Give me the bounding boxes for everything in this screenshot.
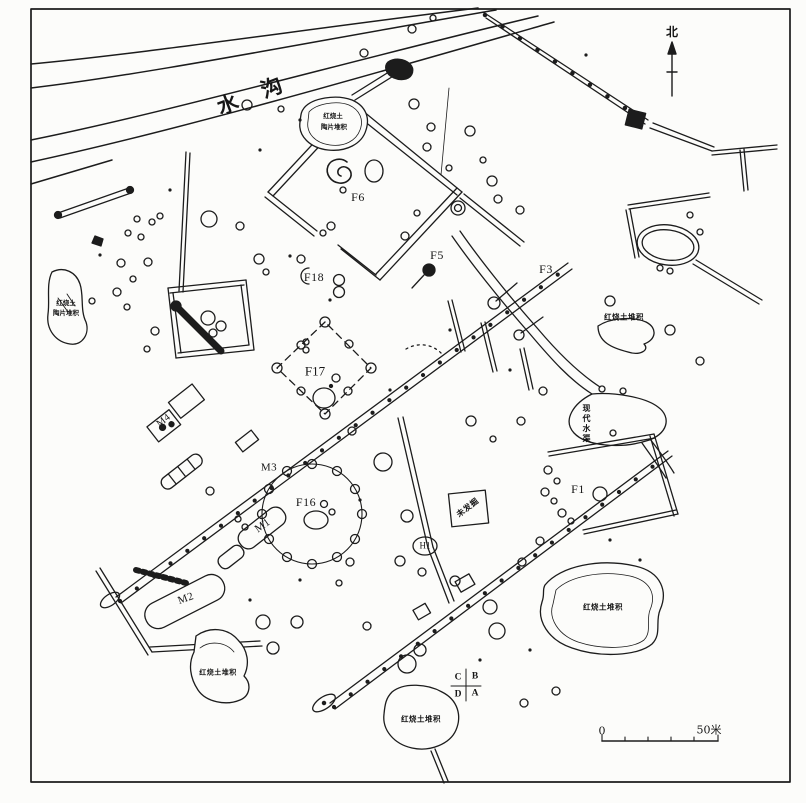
m4-graves [143, 384, 207, 442]
quadrant-label-a: A [472, 689, 479, 699]
feature-label-f18: F18 [304, 271, 324, 283]
quadrant-label-d: D [455, 690, 462, 700]
f1-enclosure [548, 434, 678, 534]
feature-label-h1: H1 [420, 542, 431, 551]
deposit-label-southwest: 红烧土堆积 [199, 670, 237, 677]
north-arrow-icon [667, 42, 677, 96]
feature-label-f3: F3 [539, 263, 553, 275]
quadrant-label-c: C [455, 673, 462, 683]
feature-label-f5: F5 [430, 249, 444, 261]
deposit-label-pond-top-line1: 红烧土 [323, 113, 343, 120]
east-enclosure [626, 193, 762, 304]
scale-start-label: 0 [599, 726, 606, 737]
feature-label-f6: F6 [351, 191, 365, 203]
quadrant-label-b: B [472, 672, 478, 682]
feature-label-f1: F1 [571, 483, 585, 495]
river-channel [31, 8, 554, 184]
f6-enclosure-walls [265, 65, 524, 280]
deposit-label-west-line2: 陶片堆积 [53, 310, 79, 317]
scale-end-label: 50米 [697, 725, 722, 736]
deposit-label-pond-top-line2: 陶片堆积 [321, 124, 347, 131]
northwest-wall [55, 187, 134, 247]
deposit-label-west-line1: 红烧土 [56, 300, 76, 307]
map-frame [31, 9, 790, 782]
feature-label-m3: M3 [261, 463, 277, 474]
m1-grave [216, 430, 290, 571]
site-plan-drawing [0, 0, 806, 803]
feature-label-f17: F17 [305, 365, 325, 378]
f16-posthole-ring [258, 460, 367, 569]
survey-line [441, 88, 449, 175]
hatched-bar [159, 452, 205, 492]
site-plan-figure: 水沟 北 0 50米 F6 F5 F18 F3 F17 F16 F1 H1 M4… [0, 0, 806, 803]
feature-label-f16: F16 [296, 496, 316, 508]
north-label: 北 [666, 26, 678, 38]
deposit-label-east: 红烧土堆积 [604, 313, 644, 321]
canal-label: 现代水渠 [582, 404, 590, 444]
northeast-trench [483, 12, 777, 191]
deposit-label-southeast: 红烧土堆积 [583, 603, 623, 611]
west-building [168, 152, 254, 358]
deposit-label-south: 红烧土堆积 [401, 715, 441, 723]
